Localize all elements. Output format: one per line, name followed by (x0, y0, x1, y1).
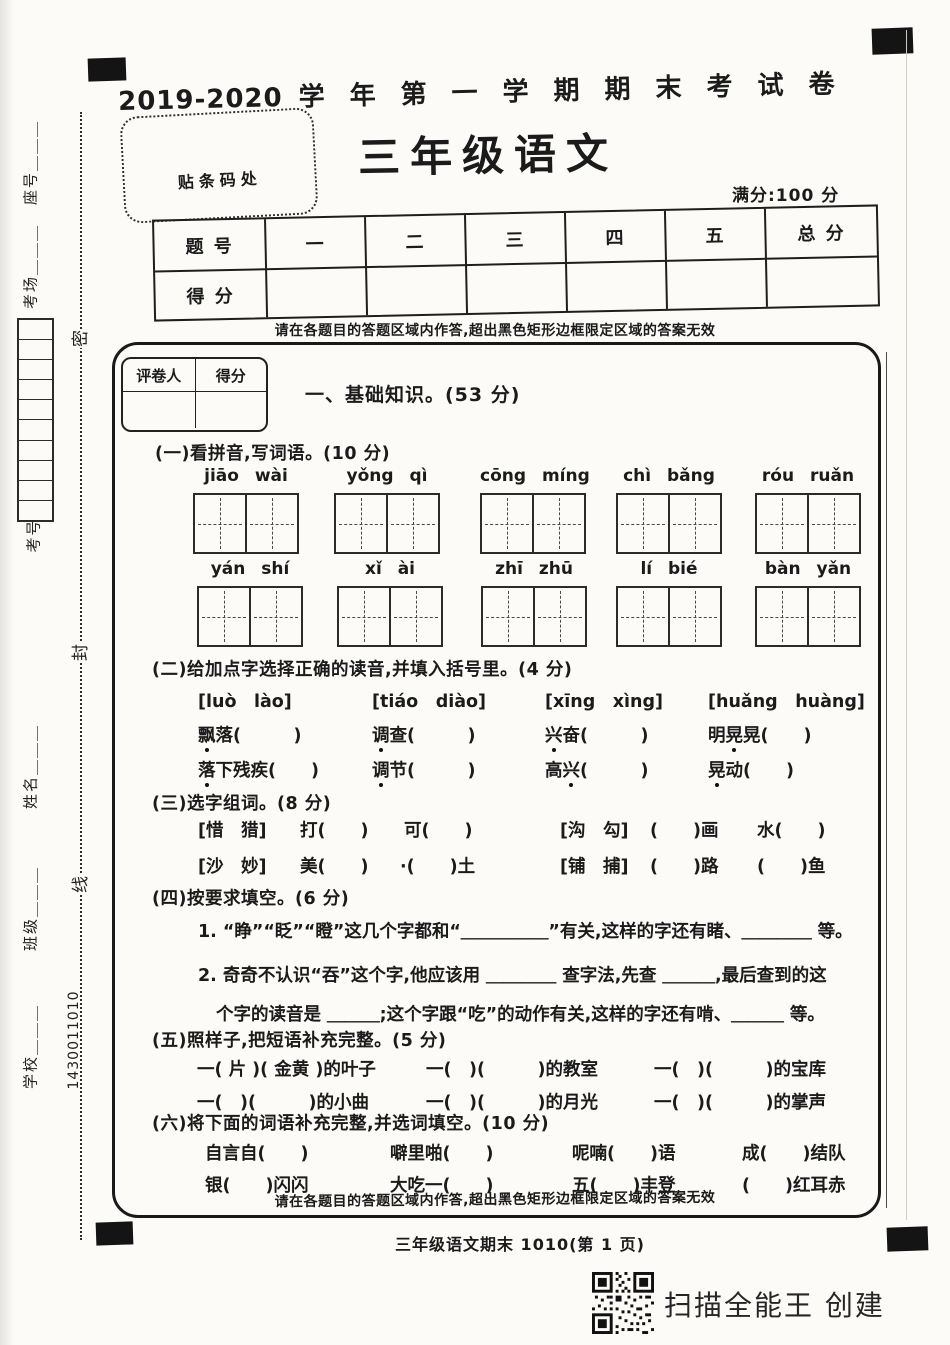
score-cell (365, 264, 466, 315)
pronunciation-item: 调节( ) (372, 757, 476, 782)
idiom-blank: 自言自( ) (205, 1140, 309, 1165)
exam-number-label: 考号 (23, 506, 44, 566)
seal-fold-line (80, 112, 82, 1240)
pinyin-hint: chì bǎng (616, 466, 722, 486)
page-footer: 三年级语文期末 1010(第 1 页) (95, 1231, 945, 1255)
dotted-char: 飘 (198, 722, 216, 747)
pronunciation-options: [luò lào] (198, 688, 292, 713)
answer-area-outer-line (886, 352, 887, 1208)
idiom-blank: 噼里啪( ) (390, 1140, 494, 1165)
student-name-label: 姓名＿＿＿ (20, 711, 41, 823)
dotted-char: 调 (372, 757, 390, 782)
pinyin-group: xǐ ài (337, 559, 443, 647)
seat-number-label: 座号＿＿＿ (20, 107, 41, 219)
fill-blank-line: 个字的读音是 ＿＿＿;这个字跟“吃”的动作有关,这样的字还有啃、＿＿＿ 等。 (216, 1001, 825, 1026)
scanner-watermark: 扫描全能王 创建 (664, 1284, 885, 1324)
exam-number-grid (17, 318, 54, 522)
pinyin-hint: xǐ ài (337, 559, 443, 579)
pronunciation-item: 明晃晃( ) (708, 722, 812, 747)
score-row-label: 得 分 (155, 268, 266, 319)
pinyin-hint: yán shí (197, 559, 303, 579)
part1-title: 一、基础知识。(53 分) (305, 380, 520, 407)
score-table-header: 三 (464, 213, 565, 264)
writing-grid (337, 586, 443, 647)
score-label: 得分 (195, 359, 267, 391)
section1-title: (一)看拼音,写词语。(10 分) (155, 440, 390, 465)
grader-label: 评卷人 (123, 359, 195, 391)
exam-sheet: 座号＿＿＿ 考场＿＿＿ 考号 姓名＿＿＿ 班级＿＿＿ 学校＿＿＿ 1430011… (0, 0, 950, 1345)
phrase-blank: 一( )( )的宝库 (654, 1056, 826, 1081)
score-cell (765, 255, 878, 306)
pinyin-group: yǒng qì (334, 466, 440, 554)
pinyin-group: lí bié (616, 559, 722, 647)
dotted-char: 晃 (726, 722, 744, 747)
exam-term-title: 学年第一学期期末考试卷 (298, 63, 860, 114)
section6-title: (六)将下面的词语补充完整,并选词填空。(10 分) (152, 1110, 549, 1135)
registration-mark (872, 27, 914, 54)
score-table-header: 五 (664, 209, 765, 260)
word-blank: ( )鱼 (757, 853, 826, 878)
score-table: 题 号 一 二 三 四 五 总 分 得 分 (152, 204, 880, 321)
pinyin-hint: bàn yǎn (755, 559, 861, 579)
score-table-header: 题 号 (154, 219, 265, 270)
full-score-label: 满分:100 分 (732, 181, 839, 206)
answer-area-notice-top: 请在各题目的答题区域内作答,超出黑色矩形边框限定区域的答案无效 (113, 320, 877, 340)
grader-score-box: 评卷人 得分 (121, 357, 268, 432)
dotted-char: 晃 (708, 757, 726, 782)
word-blank: ( )路 (650, 853, 719, 878)
qr-code (592, 1272, 654, 1334)
word-blank: 水( ) (757, 817, 826, 842)
writing-grid (755, 493, 861, 554)
section5-title: (五)照样子,把短语补充完整。(5 分) (152, 1027, 446, 1052)
paper-title: 三年级语文 (357, 120, 618, 186)
pinyin-group: cōng míng (480, 466, 586, 554)
idiom-blank: 成( )结队 (742, 1140, 846, 1165)
pronunciation-item: 飘落( ) (198, 722, 302, 747)
pinyin-hint: róu ruǎn (755, 466, 861, 486)
char-choice: [沟 勾] (560, 817, 629, 842)
writing-grid (480, 493, 586, 554)
score-table-header: 一 (264, 217, 365, 268)
pinyin-group: zhī zhū (481, 559, 587, 647)
dotted-char: 调 (372, 722, 390, 747)
writing-grid (616, 586, 722, 647)
phrase-blank: 一( )( )的教室 (426, 1056, 598, 1081)
phrase-blank: 一( 片 )( 金黄 )的叶子 (197, 1056, 376, 1081)
pronunciation-item: 调查( ) (372, 722, 476, 747)
char-choice: [惜 猎] (198, 817, 267, 842)
pronunciation-item: 兴奋( ) (545, 722, 649, 747)
pinyin-group: róu ruǎn (755, 466, 861, 554)
barcode-area: 贴条码处 (119, 107, 318, 224)
pronunciation-options: [xīng xìng] (545, 688, 663, 713)
pronunciation-item: 高兴( ) (545, 757, 649, 782)
section3-title: (三)选字组词。(8 分) (152, 790, 331, 815)
dotted-char: 兴 (563, 757, 581, 782)
writing-grid (616, 493, 722, 554)
pinyin-group: jiāo wài (193, 466, 299, 554)
scan-page-edge (906, 30, 907, 1220)
score-table-header: 总 分 (764, 206, 877, 257)
word-blank: ·( )土 (400, 853, 475, 878)
score-cell (565, 260, 666, 311)
class-label: 班级＿＿＿ (20, 853, 41, 965)
section4-title: (四)按要求填空。(6 分) (152, 885, 349, 910)
word-blank: 打( ) (300, 817, 369, 842)
word-blank: 美( ) (300, 853, 369, 878)
writing-grid (755, 586, 861, 647)
school-label: 学校＿＿＿ (20, 991, 41, 1103)
pronunciation-item: 落下残疾( ) (198, 757, 319, 782)
score-table-header: 四 (564, 211, 665, 262)
fill-blank-line: 1. “睁”“眨”“瞪”这几个字都和“＿＿＿＿＿”有关,这样的字还有睹、＿＿＿＿… (198, 918, 853, 943)
score-table-header: 二 (364, 215, 465, 266)
grader-cell (123, 391, 195, 428)
idiom-blank: 呢喃( )语 (572, 1140, 676, 1165)
char-choice: [沙 妙] (198, 853, 267, 878)
pinyin-group: bàn yǎn (755, 559, 861, 647)
barcode-area-label: 贴条码处 (177, 164, 262, 192)
pinyin-hint: yǒng qì (334, 466, 440, 486)
pronunciation-options: [tiáo diào] (372, 688, 486, 713)
word-blank: ( )画 (650, 817, 719, 842)
writing-grid (193, 493, 299, 554)
pinyin-group: chì bǎng (616, 466, 722, 554)
pronunciation-options: [huǎng huàng] (708, 688, 865, 713)
exam-room-label: 考场＿＿＿ (20, 211, 41, 323)
phrase-blank: 一( )( )的掌声 (654, 1089, 826, 1114)
score-cell (265, 266, 366, 317)
word-blank: 可( ) (404, 817, 473, 842)
exam-session-title: 2019-2020 学年第一学期期末考试卷 (118, 63, 860, 118)
score-cell (665, 258, 766, 309)
pinyin-hint: jiāo wài (193, 466, 299, 486)
writing-grid (197, 586, 303, 647)
seal-char-mi: 密 (62, 329, 95, 348)
writing-grid (334, 493, 440, 554)
pinyin-group: yán shí (197, 559, 303, 647)
score-cell (195, 391, 267, 428)
section2-title: (二)给加点字选择正确的读音,并填入括号里。(4 分) (152, 656, 572, 681)
pinyin-hint: lí bié (616, 559, 722, 579)
dotted-char: 兴 (545, 722, 563, 747)
seal-char-xian: 线 (62, 875, 95, 894)
seal-char-feng: 封 (62, 643, 95, 662)
pronunciation-item: 晃动( ) (708, 757, 794, 782)
score-cell (465, 262, 566, 313)
dotted-char: 落 (198, 757, 216, 782)
char-choice: [铺 捕] (560, 853, 629, 878)
registration-mark (88, 57, 127, 81)
pinyin-hint: cōng míng (480, 466, 586, 486)
pinyin-hint: zhī zhū (481, 559, 587, 579)
fill-blank-line: 2. 奇奇不认识“吞”这个字,他应该用 ＿＿＿＿ 查字法,先查 ＿＿＿,最后查到… (198, 962, 827, 987)
writing-grid (481, 586, 587, 647)
